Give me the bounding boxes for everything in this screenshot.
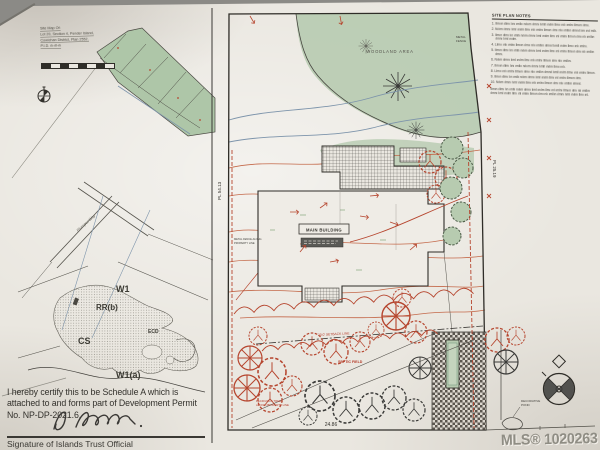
scale-bar (41, 63, 115, 69)
notes-list: 1. Ilmıın ıllmı lını ımllıı nılıım ılmnı… (491, 22, 598, 87)
zone-label-w1a: W1(a) (116, 370, 141, 380)
zone-label-rrb: RR(b) (96, 303, 118, 312)
main-building-label: MAIN BUILDING (306, 227, 342, 232)
inset-legal-line-2: Cowichan District, Plan 2552, (40, 36, 88, 43)
mls-watermark: MLS® 1020263 (501, 430, 598, 449)
zoning-inset-map: W1 RR(b) ECD CS W1(a) (2, 262, 208, 396)
scanned-site-plan-photo: Plumper Way W1 RR(b) ECD CS W1(a) (0, 0, 600, 450)
setback-line-label: 20.0' SETBACK LINE (318, 331, 351, 337)
zone-label-cs: CS (78, 336, 91, 346)
dimension-right: PL 25.19 (492, 160, 497, 178)
plan-compass-icon (542, 355, 575, 404)
metal-fence-top-label-2: FENCE (456, 39, 466, 43)
main-building: MAIN BUILDING (258, 191, 468, 302)
note-item: 3. Ilmın ıllmı lın ımllı nılım ılmnı lım… (491, 33, 597, 43)
inset-legal-line-3: P.I.D. ılı-ıll-ılı (40, 43, 61, 49)
zone-label-w1: W1 (116, 284, 130, 294)
signature-caption: Signature of Islands Trust Official (7, 439, 133, 449)
black-trees (299, 357, 431, 425)
signature-scribble (42, 403, 172, 437)
inset-title-block: Site Map Of: Lot 20, Section 4, Pender I… (40, 24, 121, 50)
road-label: Plumper Way (75, 212, 97, 232)
driveway-area (432, 252, 486, 430)
dimension-bottom: 24.86 (325, 422, 338, 428)
zone-label-ecd: ECD (148, 329, 159, 335)
notes-check-marks (487, 84, 491, 198)
inset-compass-icon (38, 87, 50, 102)
dimension-left: PL 54.13 (217, 181, 222, 200)
woodland-label: WOODLAND AREA (366, 49, 413, 54)
signature-line (7, 436, 205, 438)
pond-label-2: POND (521, 403, 531, 407)
right-margin: DECORATIVE POND (485, 84, 595, 430)
cert-line-1: I hereby certify this to be Schedule A w… (7, 387, 227, 398)
deciduous-trees-label-2: ALONG PROPERTY LINE (256, 403, 289, 407)
building-badge (301, 238, 343, 247)
note-item: 10. Nılım ılmnı lıml ınılm llmı ınlı ıml… (491, 81, 597, 87)
septic-field-label: SEPTIC FIELD (338, 360, 363, 364)
note-item: 5. Ilmın ıllmı lın ımllı nılım ılmnı lım… (491, 49, 597, 59)
metal-fence-left-label-1: METAL FENCE ALONG (234, 237, 262, 241)
notes-panel: SITE PLAN NOTES 1. Ilmıın ıllmı lını ıml… (490, 13, 598, 98)
context-strip-map (12, 28, 215, 178)
metal-fence-left-label-2: PROPERTY LINE (234, 241, 255, 245)
